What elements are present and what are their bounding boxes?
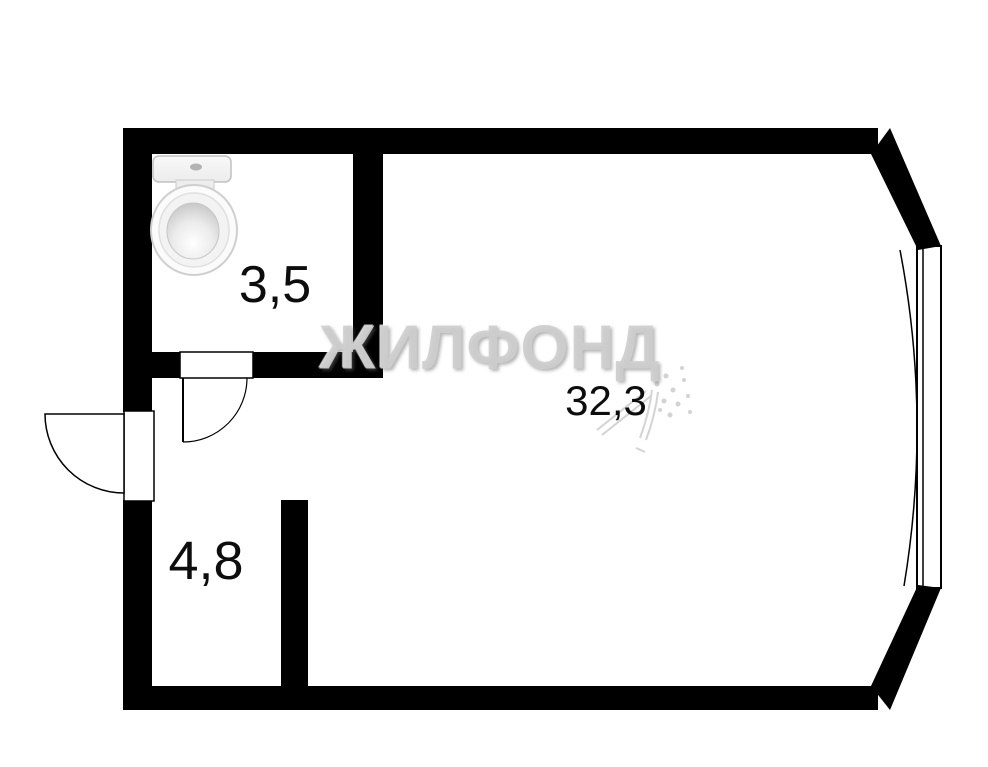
wall-left-upper [123, 128, 152, 412]
bathroom-door [180, 352, 253, 442]
wall-bottom-diagonal [871, 585, 941, 710]
curved-wall-line [900, 250, 917, 586]
bay-window [900, 246, 941, 588]
toilet-bowl-inner [167, 203, 219, 259]
window-frame [917, 246, 941, 588]
entrance-door-swing-arc [45, 414, 124, 493]
wall-left-lower [123, 500, 152, 710]
bathroom-door-opening [180, 352, 253, 378]
floor-plan-drawing [0, 0, 988, 767]
toilet-icon [151, 156, 237, 275]
hallway-area-label: 4,8 [168, 534, 243, 588]
toilet-flush-button [190, 164, 202, 171]
floor-plan: ЖИЛФОНД 3,5 4,8 32,3 [0, 0, 988, 767]
living-room-area-label: 32,3 [565, 380, 647, 422]
entrance-door-opening [124, 411, 154, 501]
wall-bottom [123, 686, 878, 710]
entrance-door [45, 411, 154, 501]
walls [123, 128, 941, 710]
bathroom-area-label: 3,5 [239, 259, 311, 311]
wall-hallway-right [281, 500, 308, 686]
bathroom-door-swing-arc [183, 378, 247, 442]
wall-top-diagonal [871, 128, 941, 250]
wall-bathroom-right [353, 128, 383, 378]
wall-top [123, 128, 878, 154]
